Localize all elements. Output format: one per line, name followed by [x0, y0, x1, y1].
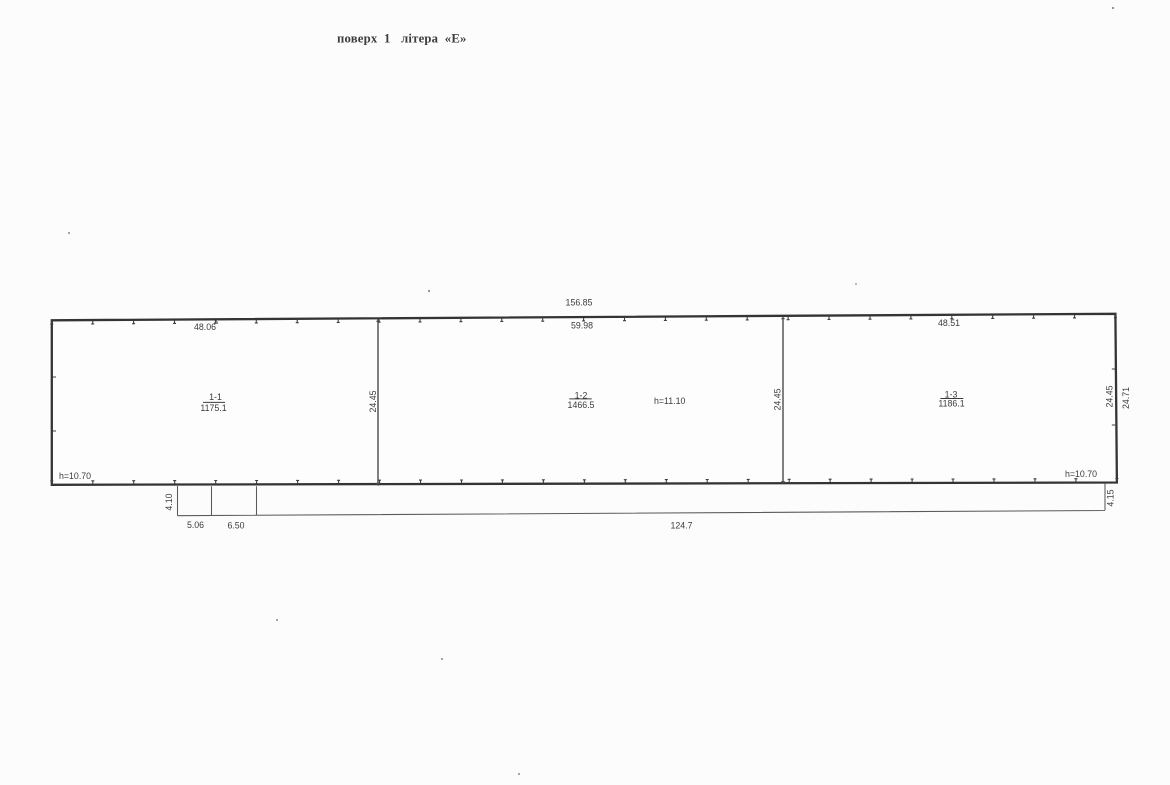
svg-text:h=10.70: h=10.70 [1065, 469, 1097, 479]
svg-text:59.98: 59.98 [571, 321, 593, 331]
svg-text:1175.1: 1175.1 [200, 403, 226, 413]
svg-text:24.71: 24.71 [1121, 387, 1131, 409]
svg-text:48.06: 48.06 [194, 322, 216, 332]
svg-text:6.50: 6.50 [227, 521, 244, 531]
svg-text:1466.5: 1466.5 [568, 400, 595, 410]
svg-text:4.15: 4.15 [1106, 489, 1116, 506]
svg-text:24.45: 24.45 [1105, 385, 1115, 407]
svg-text:1-1: 1-1 [209, 392, 222, 402]
svg-text:4.10: 4.10 [164, 493, 174, 510]
svg-text:24.45: 24.45 [773, 388, 783, 410]
svg-text:156.85: 156.85 [566, 298, 593, 308]
svg-text:h=11.10: h=11.10 [654, 396, 685, 406]
svg-text:поверх 1 літера «Е»: поверх 1 літера «Е» [337, 31, 467, 45]
svg-text:h=10.70: h=10.70 [59, 471, 91, 481]
svg-text:48.51: 48.51 [938, 318, 960, 328]
svg-text:1186.1: 1186.1 [938, 399, 964, 409]
svg-text:124.7: 124.7 [670, 521, 692, 531]
svg-text:5.06: 5.06 [187, 520, 204, 530]
svg-text:24.45: 24.45 [368, 390, 378, 412]
